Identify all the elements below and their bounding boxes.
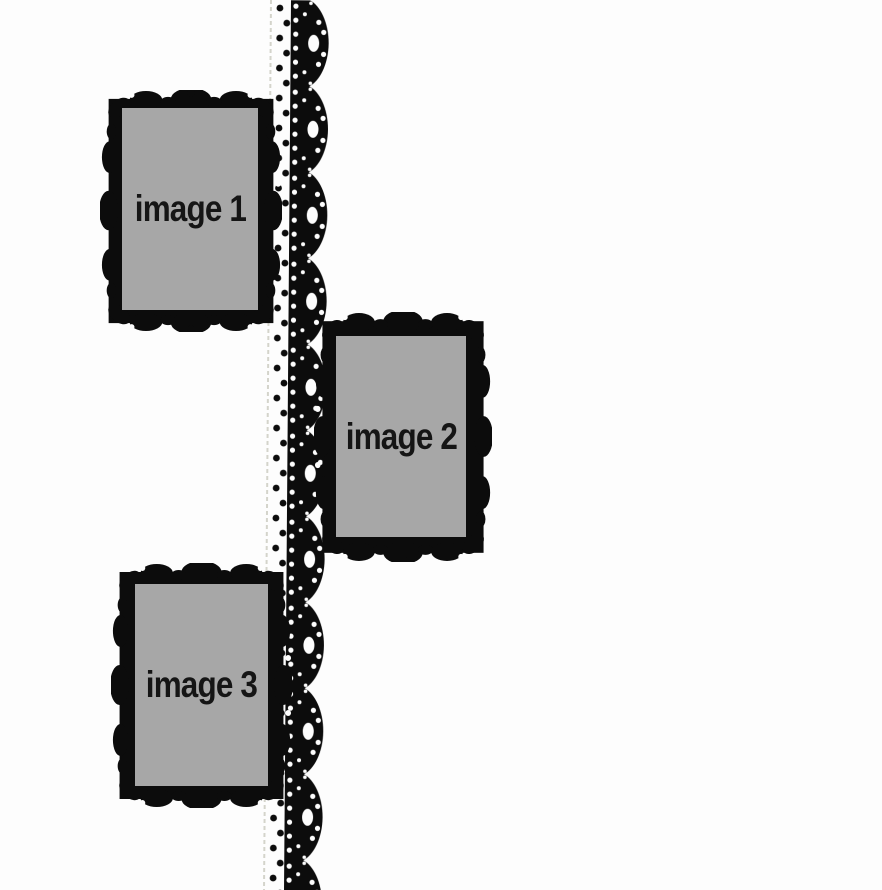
photo-label-1: image 1	[134, 188, 245, 230]
photo-frame-3: image 3	[111, 563, 292, 808]
photo-label-2: image 2	[345, 416, 456, 458]
photo-placeholder-3[interactable]: image 3	[135, 584, 268, 786]
photo-label-3: image 3	[146, 664, 257, 706]
photo-frame-2: image 2	[314, 312, 492, 562]
photo-placeholder-1[interactable]: image 1	[122, 108, 258, 310]
photo-frame-1: image 1	[100, 90, 282, 332]
scrapbook-page: image 1 image 2 image 3	[0, 0, 882, 882]
photo-placeholder-2[interactable]: image 2	[336, 336, 466, 537]
